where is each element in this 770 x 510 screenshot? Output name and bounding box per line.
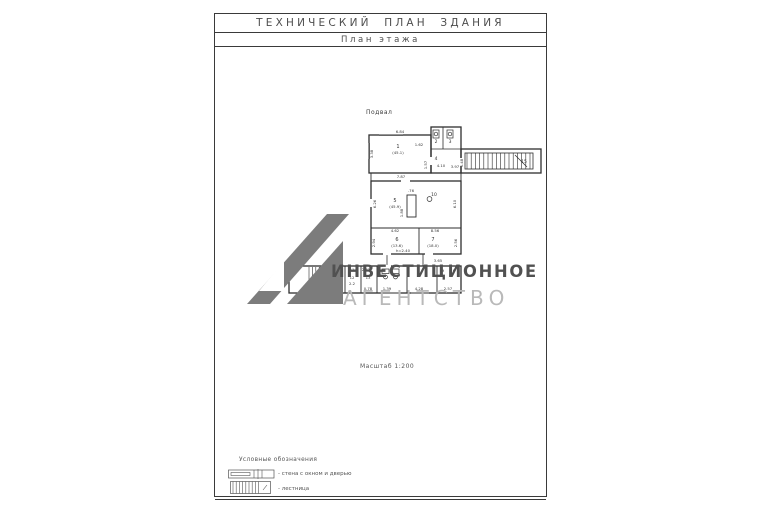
svg-text:(45.1): (45.1) [392, 150, 404, 155]
wall-window-door-symbol [228, 469, 275, 479]
svg-text:(18.0): (18.0) [427, 243, 439, 248]
svg-text:6.10: 6.10 [452, 199, 457, 208]
svg-text:6.84: 6.84 [396, 129, 405, 134]
document-title: ТЕХНИЧЕСКИЙ ПЛАН ЗДАНИЯ [215, 14, 546, 33]
svg-text:3: 3 [449, 139, 452, 145]
document-subtitle: План этажа [215, 33, 546, 47]
staircase-symbol [230, 481, 271, 494]
svg-text:1.48: 1.48 [459, 158, 464, 167]
svg-text:1.62: 1.62 [415, 142, 424, 147]
svg-text:h=2.40: h=2.40 [396, 248, 411, 253]
svg-text:6.26: 6.26 [372, 199, 377, 208]
svg-text:10: 10 [431, 192, 437, 198]
screenshot-root: ТЕХНИЧЕСКИЙ ПЛАН ЗДАНИЯ План этажа Подва… [0, 0, 770, 510]
watermark-logo [246, 211, 351, 306]
bottom-border-line [215, 499, 546, 500]
watermark-text-line1: ИНВЕСТИЦИОННОЕ [331, 262, 542, 282]
svg-text:1.88: 1.88 [399, 208, 404, 217]
svg-text:15: 15 [521, 159, 527, 165]
svg-text:(45.9): (45.9) [389, 204, 401, 209]
svg-text:8.56: 8.56 [431, 228, 440, 233]
svg-text:2.56: 2.56 [453, 238, 458, 247]
watermark-text-line2: АГЕНТСТВО [343, 286, 509, 310]
svg-text:2: 2 [435, 139, 438, 145]
svg-text:3.38: 3.38 [369, 149, 374, 158]
svg-text:2.94: 2.94 [371, 238, 376, 247]
scale-label: Масштаб 1:200 [360, 363, 414, 370]
floor-label: Подвал [366, 109, 392, 116]
document-frame: ТЕХНИЧЕСКИЙ ПЛАН ЗДАНИЯ План этажа Подва… [214, 13, 547, 497]
svg-text:4.10: 4.10 [437, 163, 446, 168]
legend-heading: Условные обозначения [239, 457, 317, 463]
svg-text:4.62: 4.62 [391, 228, 400, 233]
svg-text:7.87: 7.87 [397, 174, 406, 179]
svg-text:1.57: 1.57 [423, 160, 428, 169]
watermark-logo-notch [259, 261, 284, 291]
svg-text:.76: .76 [408, 188, 415, 193]
legend-label-stair: - лестница [278, 486, 309, 492]
legend-label-wall: - стена с окном и дверью [278, 471, 352, 477]
svg-text:4: 4 [435, 156, 438, 162]
